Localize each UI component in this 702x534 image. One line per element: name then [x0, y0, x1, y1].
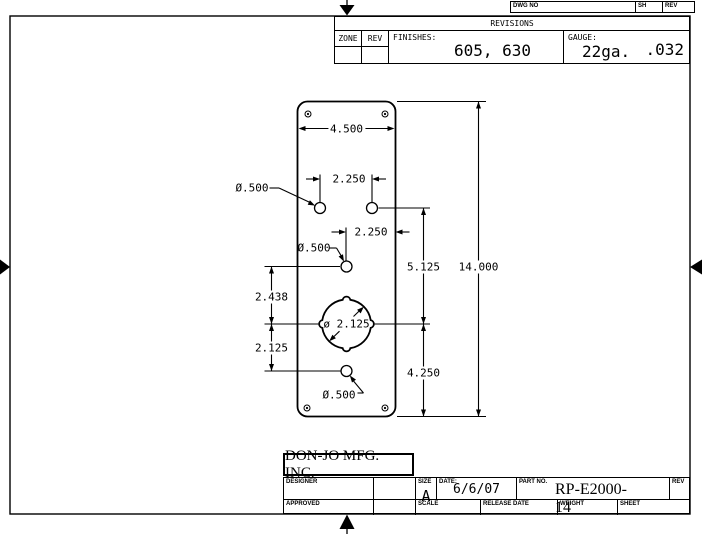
hole-top-right	[367, 203, 378, 214]
dim-top-hole-to-center: 5.125	[405, 260, 442, 273]
approved-label: APPROVED	[284, 500, 373, 508]
gauge-weight-value: 22ga.	[582, 42, 630, 61]
zone-arrow-left-icon	[0, 260, 10, 275]
dim-center-hole-offset: 2.250	[352, 226, 389, 239]
continuation-strip: DWG NO SH REV	[510, 1, 695, 13]
weight-label: WEIGHT	[558, 500, 617, 508]
sheet-border	[10, 16, 690, 514]
zone-arrow-right-icon	[690, 260, 702, 275]
rev-label: REV	[670, 478, 689, 486]
finishes-value: 605, 630	[454, 41, 531, 60]
hole-bottom	[341, 366, 352, 377]
dwg-no-label: DWG NO	[511, 2, 635, 10]
label-center-hole-dia: ø 2.125	[323, 318, 369, 331]
zone-arrow-bottom-icon	[340, 515, 355, 530]
hole-top-left	[315, 203, 326, 214]
revisions-title: REVISIONS	[490, 19, 533, 28]
dim-hole3-to-center: 2.438	[253, 290, 290, 303]
gauge-thickness-value: .032	[645, 40, 684, 59]
dim-plate-width: 4.500	[328, 122, 365, 135]
company-name: DON-JO MFG. INC.	[285, 448, 412, 482]
date-value: 6/6/07	[453, 482, 500, 497]
hole-middle	[341, 261, 352, 272]
approved-extra-cell	[374, 500, 416, 515]
dim-top-holes-spacing: 2.250	[330, 173, 367, 186]
revisions-block: REVISIONS ZONE REV FINISHES: 605, 630 GA…	[334, 16, 690, 64]
label-hole-dia-mid: Ø.500	[297, 242, 330, 255]
dim-plate-height: 14.000	[457, 261, 501, 274]
sheet-label: SHEET	[618, 500, 689, 508]
rev-no-label: REV	[663, 2, 694, 10]
label-hole-dia-top: Ø.500	[235, 182, 268, 195]
dimension-arrowheads	[269, 102, 481, 417]
scale-label: SCALE	[416, 500, 480, 508]
release-date-label: RELEASE DATE	[481, 500, 557, 508]
dim-center-to-hole4: 2.125	[253, 342, 290, 355]
zone-arrow-top-icon	[340, 5, 355, 16]
label-hole-dia-bottom: Ø.500	[322, 388, 355, 401]
dim-center-to-bottom: 4.250	[405, 367, 442, 380]
drawing-sheet: 4.500 2.250 2.250 5.125 14.000 2.438 2.1…	[0, 0, 702, 534]
gauge-label: GAUGE:	[568, 33, 597, 42]
zone-column-label: ZONE	[338, 34, 357, 43]
company-name-box: DON-JO MFG. INC.	[283, 453, 414, 476]
finishes-label: FINISHES:	[393, 33, 436, 42]
title-block: DON-JO MFG. INC. DESIGNER SIZE A DATE: 6…	[283, 453, 690, 514]
rev-column-label: REV	[368, 34, 382, 43]
sheet-no-label: SH	[636, 2, 662, 10]
size-label: SIZE	[416, 478, 436, 486]
